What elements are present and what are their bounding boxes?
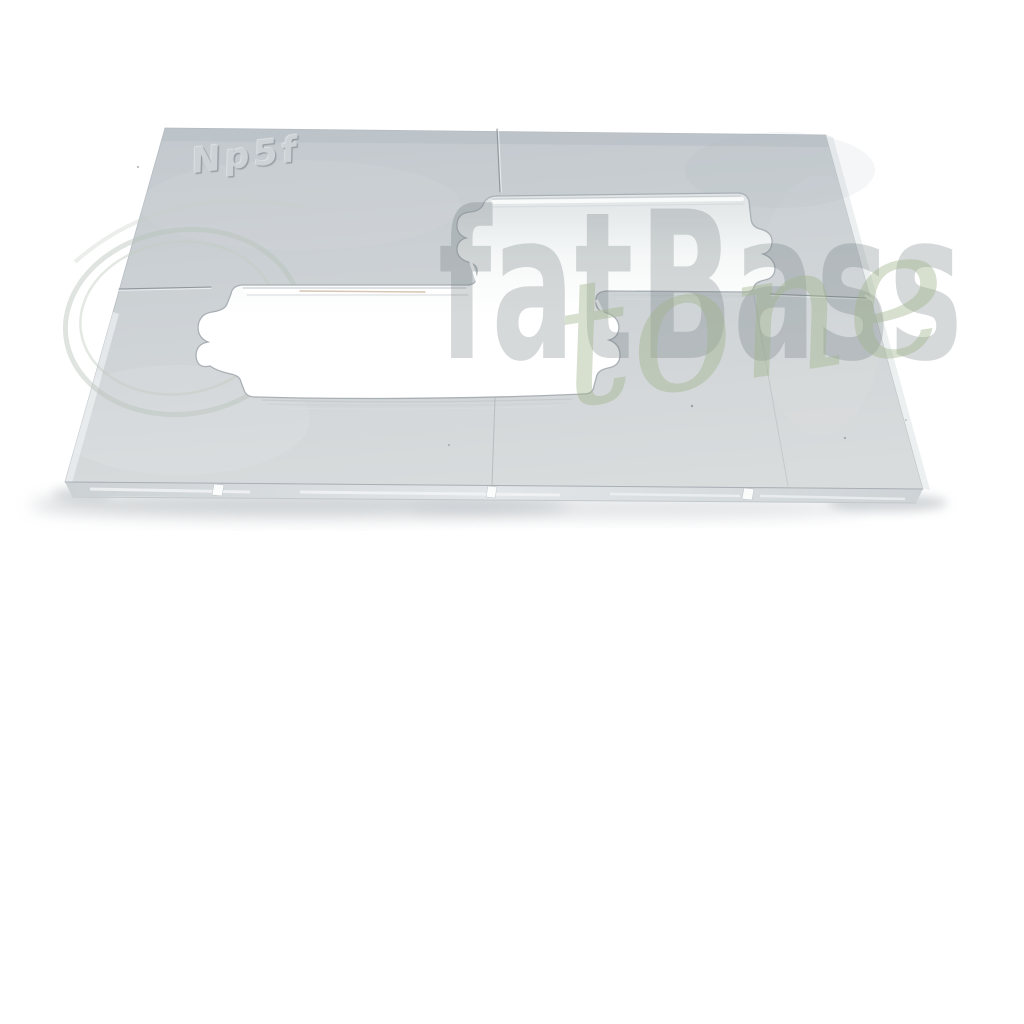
template-plate-graphic	[0, 0, 1024, 1024]
edge-notch-center	[486, 486, 497, 498]
edge-notch-right	[742, 488, 754, 500]
product-photo: Np5f fatBass tone	[0, 0, 1024, 1024]
edge-notch-left	[212, 484, 224, 496]
